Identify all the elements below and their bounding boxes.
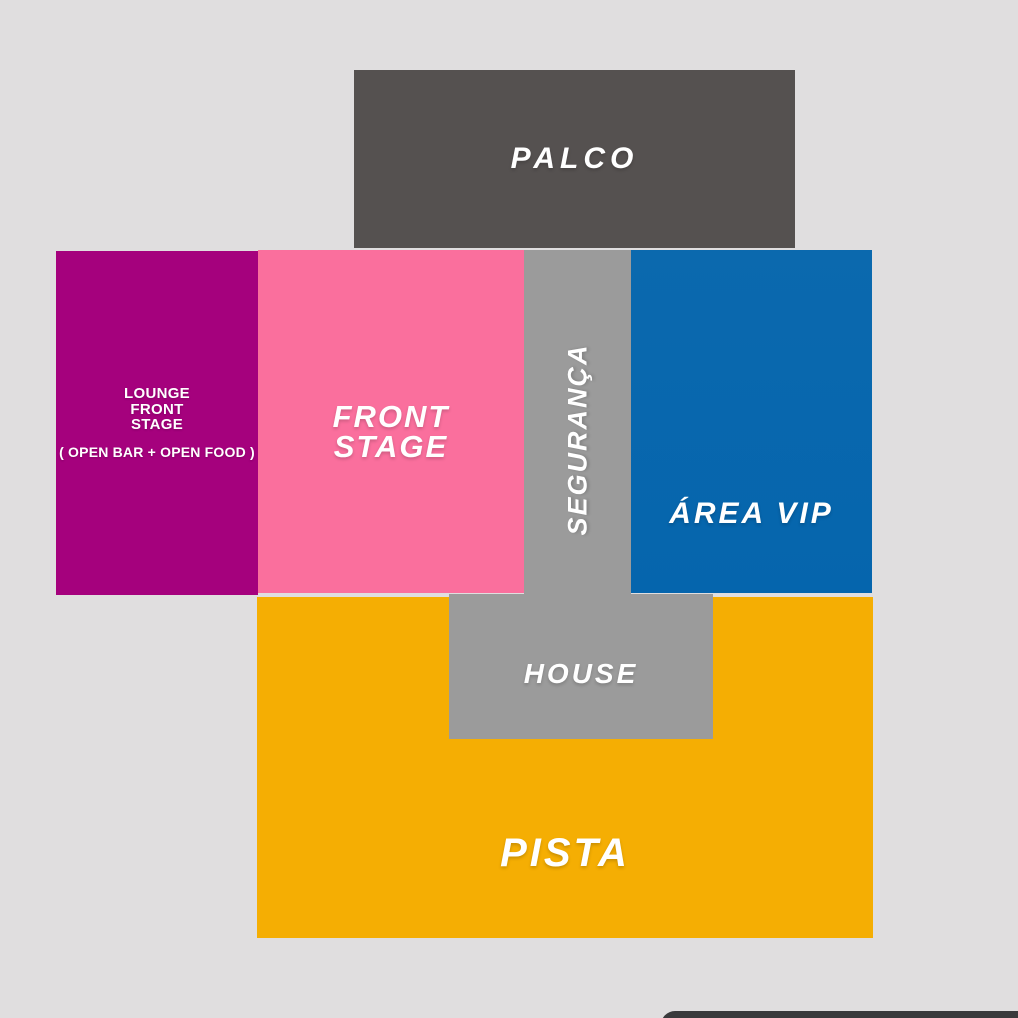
zone-front-stage: FRONT STAGE [258, 250, 524, 593]
zone-palco: PALCO [354, 70, 795, 248]
front-stage-label: FRONT STAGE [333, 402, 450, 461]
lounge-subtitle: ( OPEN BAR + OPEN FOOD ) [59, 444, 255, 460]
zone-seguranca: SEGURANÇA [524, 250, 631, 597]
front-stage-label-line2: STAGE [333, 432, 450, 461]
zone-area-vip: ÁREA VIP [631, 250, 872, 593]
lounge-title-line3: STAGE [124, 417, 190, 433]
pista-label: PISTA [500, 831, 630, 876]
lounge-title-line1: LOUNGE [124, 386, 190, 402]
front-stage-label-line1: FRONT [333, 402, 450, 431]
palco-label: PALCO [511, 142, 639, 176]
area-vip-label: ÁREA VIP [669, 497, 834, 531]
bottom-overlay-sheet[interactable] [661, 1011, 1018, 1018]
zone-house: HOUSE [449, 594, 713, 739]
lounge-title-line2: FRONT [124, 402, 190, 418]
house-label: HOUSE [524, 658, 639, 690]
seguranca-label: SEGURANÇA [562, 343, 593, 535]
venue-map: PALCO LOUNGE FRONT STAGE ( OPEN BAR + OP… [0, 0, 1018, 1018]
lounge-title: LOUNGE FRONT STAGE [124, 386, 190, 433]
zone-lounge-front-stage: LOUNGE FRONT STAGE ( OPEN BAR + OPEN FOO… [56, 251, 258, 595]
